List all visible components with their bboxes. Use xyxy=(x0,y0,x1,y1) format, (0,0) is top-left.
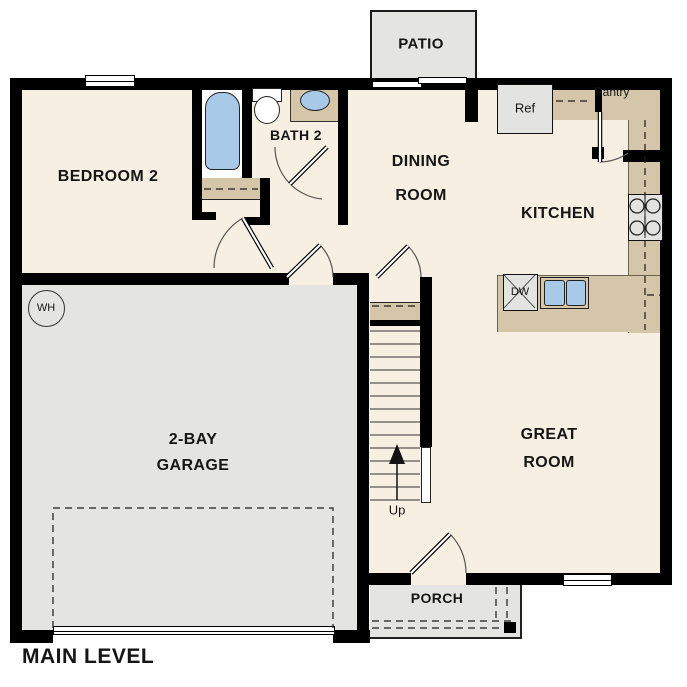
kitchen-label: KITCHEN xyxy=(521,205,595,223)
bedroom2-label: BEDROOM 2 xyxy=(58,168,159,186)
refrigerator-label: Ref xyxy=(515,101,535,116)
porch-post xyxy=(504,622,516,633)
bath2-label: BATH 2 xyxy=(270,127,322,143)
garage-label-line2: GARAGE xyxy=(157,457,230,475)
up-arrow xyxy=(389,444,405,500)
pantry-label: Pantry xyxy=(595,85,630,99)
great-room-label-line1: GREAT xyxy=(521,426,578,444)
dishwasher-label: DW xyxy=(511,286,529,298)
water-heater-label: WH xyxy=(37,302,55,314)
dining-label-line2: ROOM xyxy=(395,187,446,205)
garage-label-line1: 2-BAY xyxy=(169,431,218,449)
dining-label-line1: DINING xyxy=(392,153,450,171)
door-leaves xyxy=(243,112,600,573)
stove-burners xyxy=(630,195,660,238)
floor-plan: PATIO BEDROOM 2 BATH 2 DINING ROOM KITCH… xyxy=(0,0,687,687)
up-label: Up xyxy=(389,503,406,518)
porch-label: PORCH xyxy=(411,590,464,606)
plan-title: MAIN LEVEL xyxy=(22,645,154,669)
patio-label: PATIO xyxy=(398,36,444,53)
stair-treads xyxy=(370,331,420,500)
plan-linework xyxy=(0,0,687,687)
great-room-label-line2: ROOM xyxy=(523,454,574,472)
